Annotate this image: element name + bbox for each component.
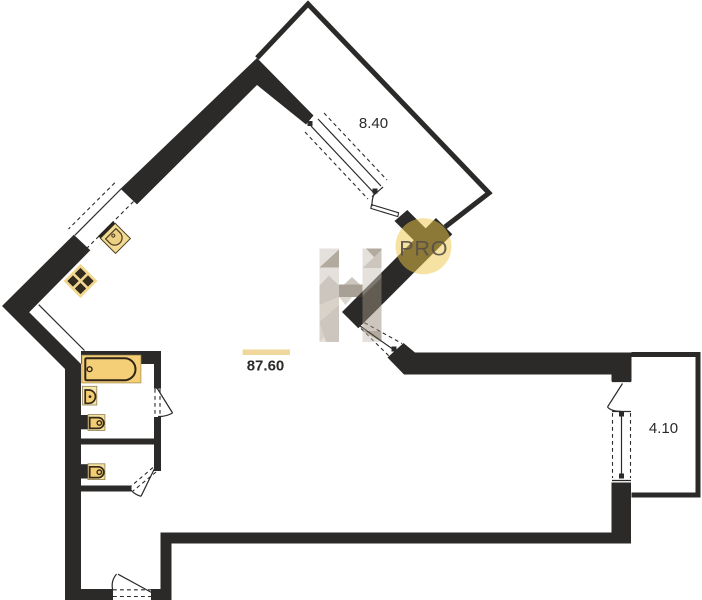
svg-text:PRO: PRO — [399, 237, 448, 261]
svg-text:4.10: 4.10 — [649, 420, 678, 437]
svg-text:8.40: 8.40 — [359, 115, 388, 132]
svg-text:87.60: 87.60 — [247, 358, 285, 375]
